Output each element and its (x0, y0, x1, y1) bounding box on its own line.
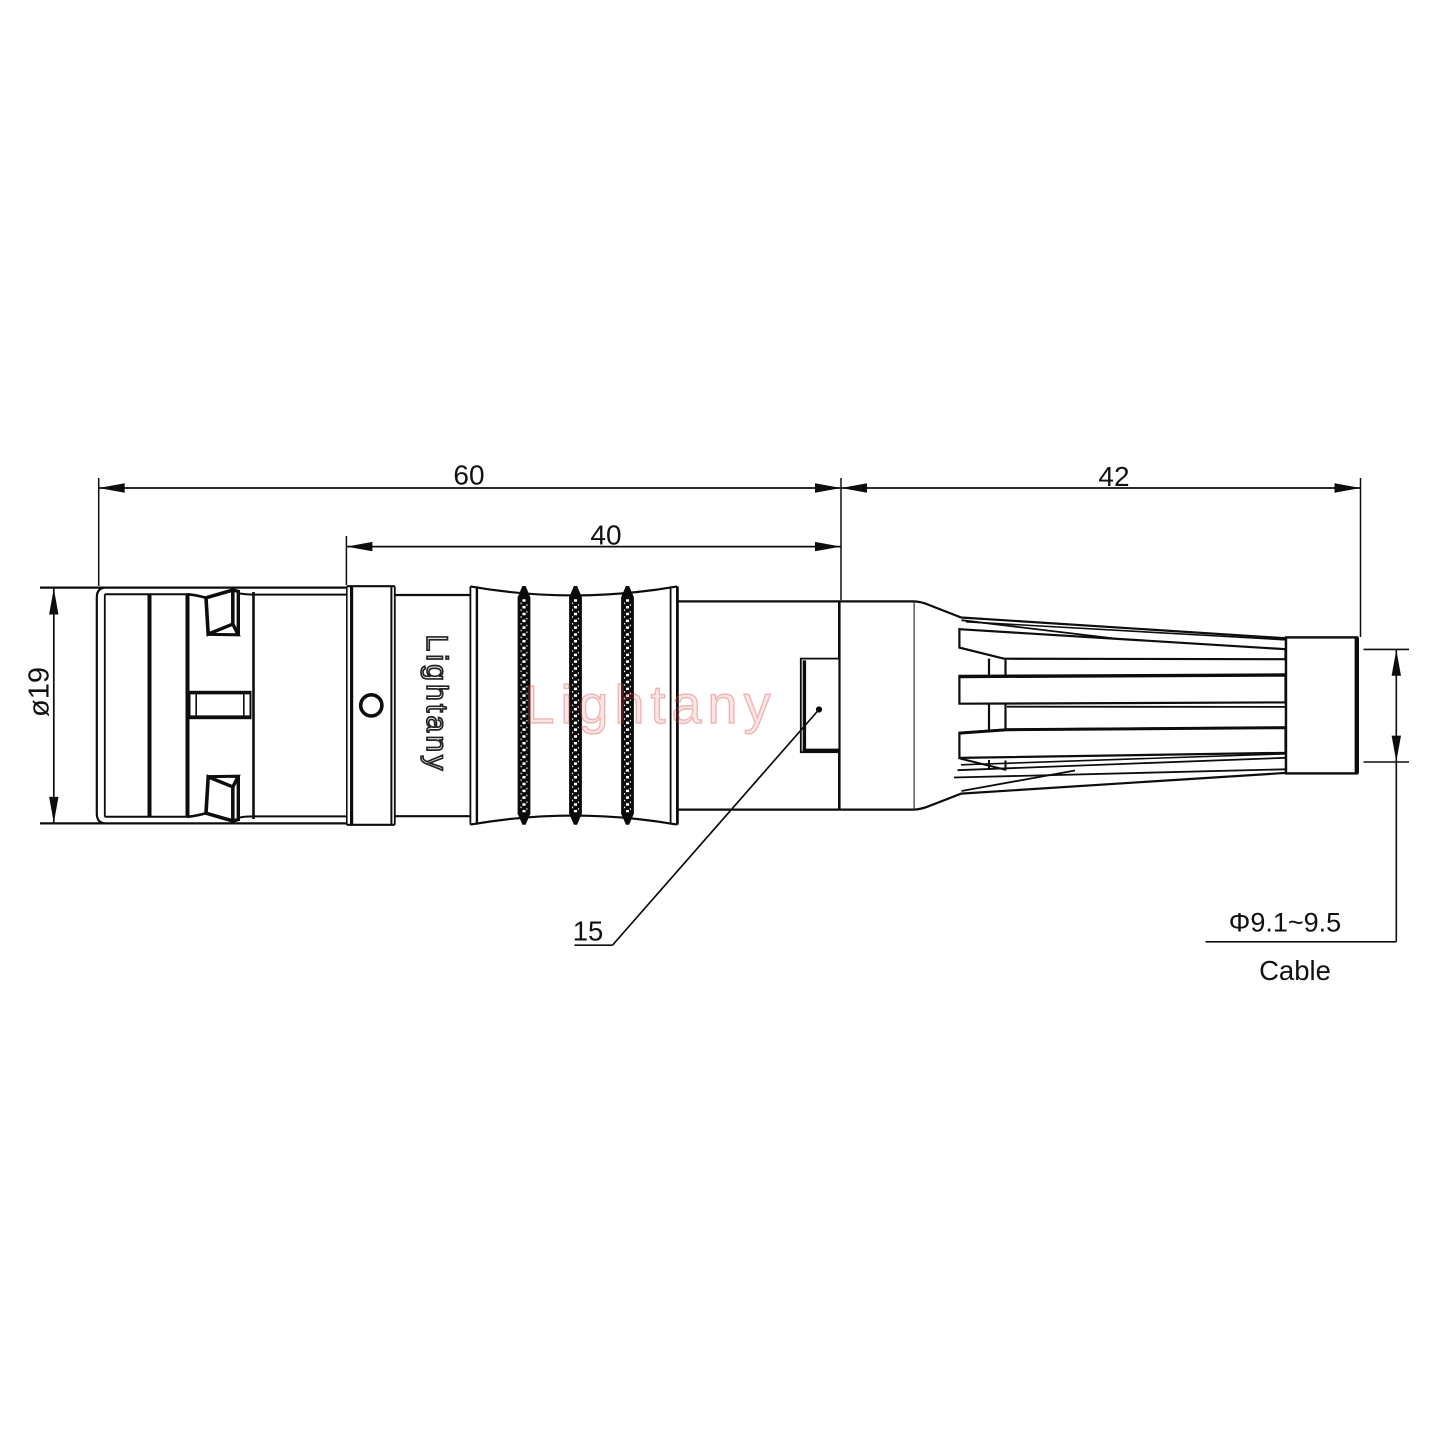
svg-text:ø19: ø19 (24, 667, 56, 717)
svg-text:Lightany: Lightany (420, 634, 453, 773)
svg-text:Cable: Cable (1259, 955, 1331, 986)
svg-text:40: 40 (590, 519, 621, 550)
svg-text:Lightany: Lightany (524, 675, 776, 735)
svg-text:60: 60 (453, 460, 484, 491)
svg-text:15: 15 (573, 916, 604, 947)
svg-text:42: 42 (1098, 461, 1129, 492)
svg-text:Φ9.1~9.5: Φ9.1~9.5 (1229, 908, 1341, 938)
